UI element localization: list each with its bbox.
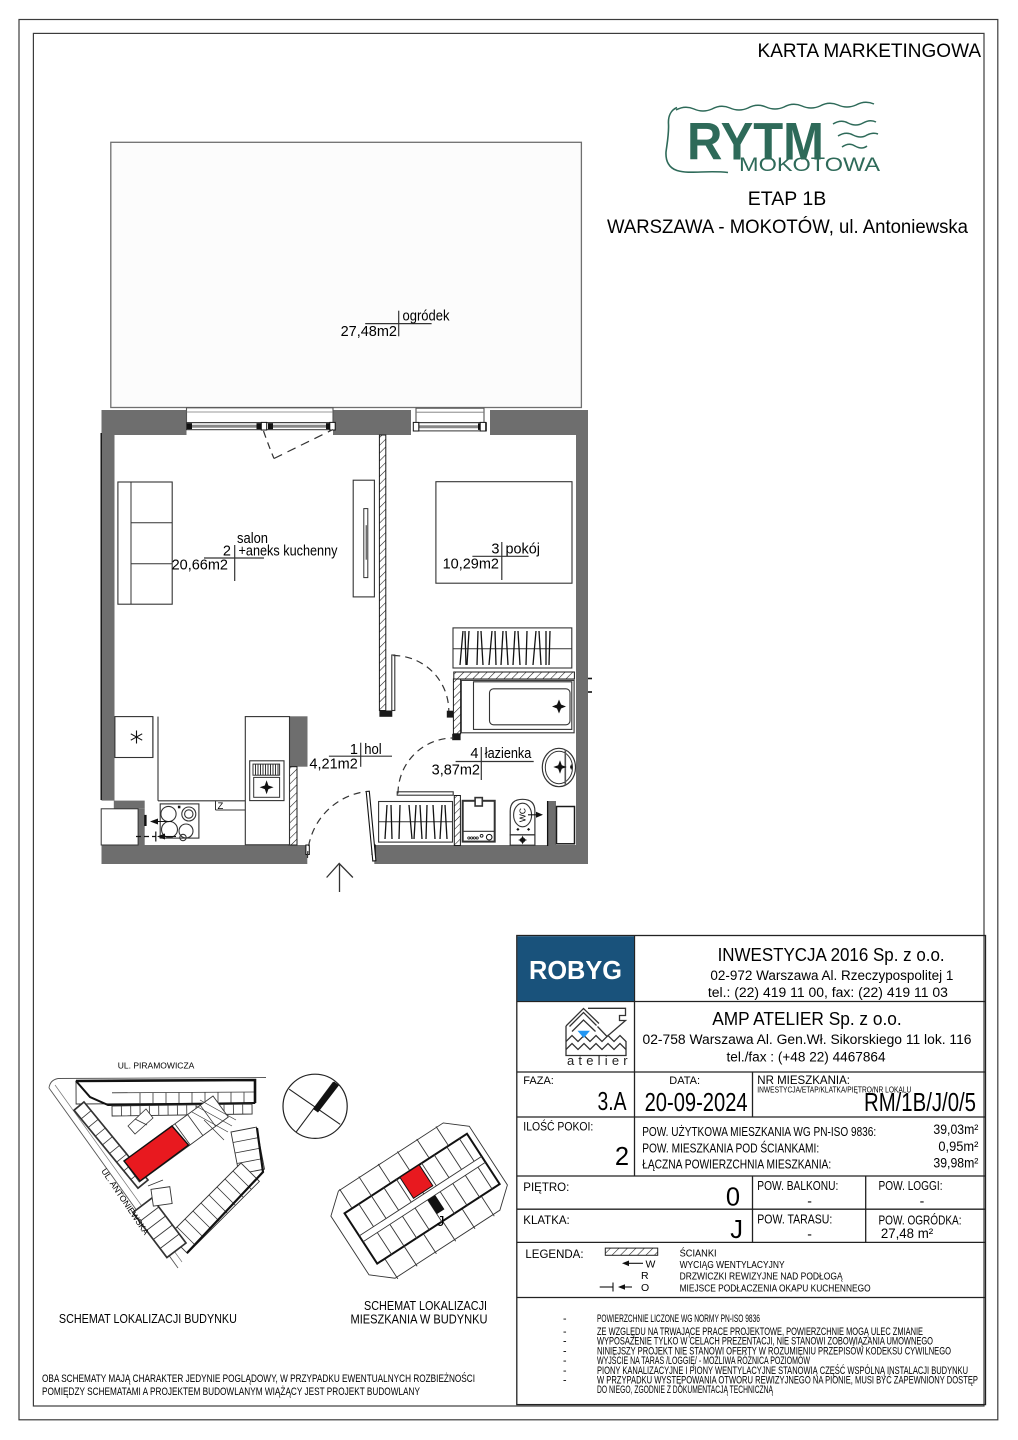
svg-text:-: - (563, 1313, 567, 1325)
svg-text:UL. PIRAMOWICZA: UL. PIRAMOWICZA (118, 1061, 195, 1071)
svg-text:POWIERZCHNIE LICZONE WG NORMY: POWIERZCHNIE LICZONE WG NORMY PN-ISO 983… (597, 1313, 760, 1325)
svg-text:POW. UŻYTKOWA MIESZKANIA WG PN: POW. UŻYTKOWA MIESZKANIA WG PN-ISO 9836: (642, 1125, 876, 1139)
svg-text:OBA SCHEMATY MAJĄ CHARAKTER JE: OBA SCHEMATY MAJĄ CHARAKTER JEDYNIE POGL… (42, 1372, 475, 1385)
svg-text:-: - (563, 1375, 567, 1387)
svg-text:R: R (641, 1270, 649, 1282)
svg-text:FAZA:: FAZA: (523, 1075, 554, 1087)
svg-text:MIESZKANIA W BUDYNKU: MIESZKANIA W BUDYNKU (351, 1312, 488, 1327)
svg-text:tel./fax : (+48 22) 4467864: tel./fax : (+48 22) 4467864 (727, 1050, 886, 1066)
svg-text:RM/1B/J/0/5: RM/1B/J/0/5 (864, 1089, 976, 1117)
svg-text:ŚCIANKI: ŚCIANKI (680, 1247, 717, 1260)
svg-text:POW. MIESZKANIA POD ŚCIANKAMI:: POW. MIESZKANIA POD ŚCIANKAMI: (642, 1141, 819, 1156)
svg-text:atelier: atelier (567, 1053, 632, 1068)
svg-text:tel.: (22) 419 11 00, fax: (22: tel.: (22) 419 11 00, fax: (22) 419 11 0… (708, 985, 948, 1001)
svg-text:DO NIEGO, ZGODNIE Z DOKUMENTAC: DO NIEGO, ZGODNIE Z DOKUMENTACJĄ TECHNIC… (597, 1384, 774, 1396)
svg-text:W: W (646, 1259, 656, 1271)
svg-text:POW. LOGGI:: POW. LOGGI: (879, 1179, 943, 1193)
svg-text:WARSZAWA - MOKOTÓW, ul. Antoni: WARSZAWA - MOKOTÓW, ul. Antoniewska (607, 215, 968, 238)
svg-text:POMIĘDZY SCHEMATAMI A PROJEKTE: POMIĘDZY SCHEMATAMI A PROJEKTEM BUDOWLAN… (42, 1385, 420, 1398)
svg-text:hol: hol (364, 742, 382, 758)
svg-text:-: - (920, 1193, 925, 1209)
svg-text:POW. TARASU:: POW. TARASU: (757, 1213, 832, 1227)
svg-text:KARTA MARKETINGOWA: KARTA MARKETINGOWA (758, 41, 982, 62)
svg-text:27,48m2: 27,48m2 (341, 324, 397, 340)
svg-text:0,95m²: 0,95m² (938, 1139, 978, 1154)
svg-text:Z: Z (218, 801, 224, 812)
svg-text:4: 4 (470, 746, 478, 762)
svg-text:SCHEMAT LOKALIZACJI BUDYNKU: SCHEMAT LOKALIZACJI BUDYNKU (59, 1311, 237, 1326)
svg-text:ROBYG: ROBYG (529, 955, 622, 985)
svg-text:DRZWICZKI REWIZYJNE NAD PODŁOG: DRZWICZKI REWIZYJNE NAD PODŁOGĄ (680, 1271, 844, 1283)
svg-text:WC: WC (518, 808, 528, 822)
svg-text:-: - (807, 1226, 812, 1242)
svg-text:INWESTYCJA 2016 Sp. z o.o.: INWESTYCJA 2016 Sp. z o.o. (718, 944, 945, 965)
svg-text:WYCIĄG WENTYLACYJNY: WYCIĄG WENTYLACYJNY (680, 1259, 785, 1271)
svg-text:02-972 Warszawa Al. Rzeczyposp: 02-972 Warszawa Al. Rzeczypospolitej 1 (710, 968, 953, 984)
svg-text:ogródek: ogródek (403, 309, 451, 325)
svg-text:łazienka: łazienka (485, 746, 532, 762)
svg-text:20-09-2024: 20-09-2024 (645, 1089, 748, 1117)
svg-text:+aneks kuchenny: +aneks kuchenny (239, 544, 339, 560)
svg-text:27,48 m²: 27,48 m² (881, 1226, 934, 1241)
svg-text:20,66m2: 20,66m2 (172, 558, 228, 574)
svg-text:10,29m2: 10,29m2 (443, 557, 499, 573)
svg-text:O: O (641, 1282, 649, 1294)
svg-text:ŁĄCZNA POWIERZCHNIA MIESZKANIA: ŁĄCZNA POWIERZCHNIA MIESZKANIA: (642, 1158, 831, 1172)
svg-text:PIĘTRO:: PIĘTRO: (523, 1182, 569, 1194)
svg-text:AMP ATELIER Sp. z o.o.: AMP ATELIER Sp. z o.o. (712, 1008, 902, 1029)
svg-text:J: J (730, 1216, 743, 1244)
svg-text:-: - (807, 1193, 812, 1209)
svg-text:39,03m²: 39,03m² (933, 1122, 978, 1137)
svg-text:J: J (437, 1213, 445, 1230)
svg-text:KLATKA:: KLATKA: (523, 1215, 569, 1227)
svg-text:ILOŚĆ POKOI:: ILOŚĆ POKOI: (523, 1121, 593, 1134)
svg-text:3: 3 (491, 542, 499, 558)
svg-text:3.A: 3.A (598, 1088, 627, 1116)
svg-text:DATA:: DATA: (669, 1075, 700, 1087)
svg-text:LEGENDA:: LEGENDA: (525, 1249, 583, 1261)
svg-text:0: 0 (726, 1184, 740, 1212)
svg-text:39,98m²: 39,98m² (933, 1156, 978, 1171)
svg-text:02-758 Warszawa Al. Gen.Wł. S: 02-758 Warszawa Al. Gen.Wł. Sikorskiego … (643, 1032, 972, 1048)
svg-text:MIEJSCE PODŁACZENIA OKAPU KUCH: MIEJSCE PODŁACZENIA OKAPU KUCHENNEGO (680, 1283, 871, 1295)
svg-text:4,21m2: 4,21m2 (309, 757, 357, 773)
svg-text:2: 2 (615, 1143, 629, 1171)
svg-text:3,87m2: 3,87m2 (432, 763, 480, 779)
svg-text:pokój: pokój (506, 542, 541, 558)
svg-text:MOKOTOWA: MOKOTOWA (739, 154, 880, 176)
svg-text:POW. BALKONU:: POW. BALKONU: (757, 1179, 838, 1193)
svg-text:ETAP 1B: ETAP 1B (748, 188, 826, 210)
